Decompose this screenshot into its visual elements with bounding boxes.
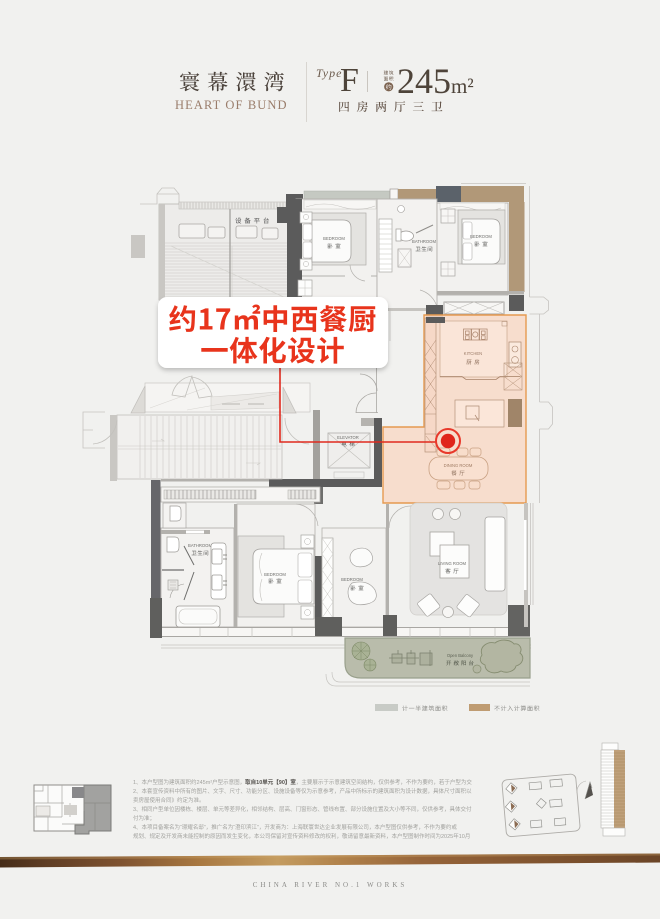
svg-text:BEDROOM: BEDROOM [470, 234, 492, 239]
svg-text:BEDROOM: BEDROOM [341, 577, 363, 582]
svg-text:DINING ROOM: DINING ROOM [444, 463, 473, 468]
svg-text:BATHROOM: BATHROOM [412, 239, 436, 244]
svg-text:ELEVATOR: ELEVATOR [337, 435, 359, 440]
svg-text:KITCHEN: KITCHEN [464, 351, 482, 356]
svg-text:BEDROOM: BEDROOM [323, 236, 345, 241]
svg-text:Open Balcony: Open Balcony [447, 653, 474, 658]
svg-text:BEDROOM: BEDROOM [264, 572, 286, 577]
svg-text:LIVING ROOM: LIVING ROOM [438, 561, 466, 566]
svg-text:BATHROOM: BATHROOM [188, 543, 212, 548]
